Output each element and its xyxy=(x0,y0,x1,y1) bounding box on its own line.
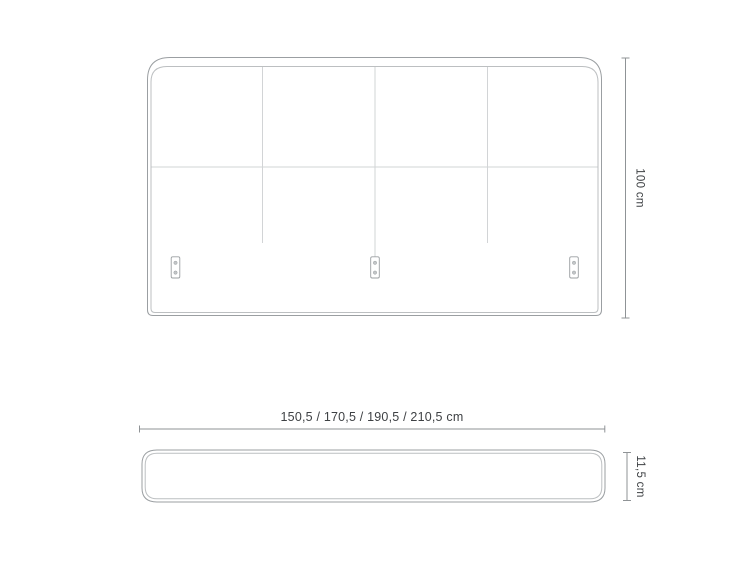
screw-hole-icon xyxy=(174,271,177,274)
screw-hole-icon xyxy=(572,261,575,264)
headboard-dimension-drawing: 100 cm 150,5 / 170,5 / 190,5 / 210,5 cm … xyxy=(0,0,750,563)
bracket-plate xyxy=(570,257,579,278)
screw-hole-icon xyxy=(373,261,376,264)
top-view-outline xyxy=(142,450,605,502)
mounting-bracket-center xyxy=(371,257,380,278)
width-dimension: 150,5 / 170,5 / 190,5 / 210,5 cm xyxy=(140,410,605,433)
height-dimension-label: 100 cm xyxy=(634,168,646,208)
front-view xyxy=(148,58,602,316)
bracket-plate xyxy=(371,257,380,278)
width-dimension-label: 150,5 / 170,5 / 190,5 / 210,5 cm xyxy=(281,410,464,424)
bracket-plate xyxy=(171,257,180,278)
thickness-dimension: 11,5 cm xyxy=(623,453,646,501)
top-view-inner-edge xyxy=(145,453,602,499)
screw-hole-icon xyxy=(572,271,575,274)
height-dimension: 100 cm xyxy=(622,58,646,318)
mounting-bracket-left xyxy=(171,257,180,278)
mounting-bracket-right xyxy=(570,257,579,278)
screw-hole-icon xyxy=(373,271,376,274)
thickness-dimension-label: 11,5 cm xyxy=(634,455,646,497)
screw-hole-icon xyxy=(174,261,177,264)
top-view xyxy=(142,450,605,502)
drawing-canvas: 100 cm 150,5 / 170,5 / 190,5 / 210,5 cm … xyxy=(0,0,750,563)
